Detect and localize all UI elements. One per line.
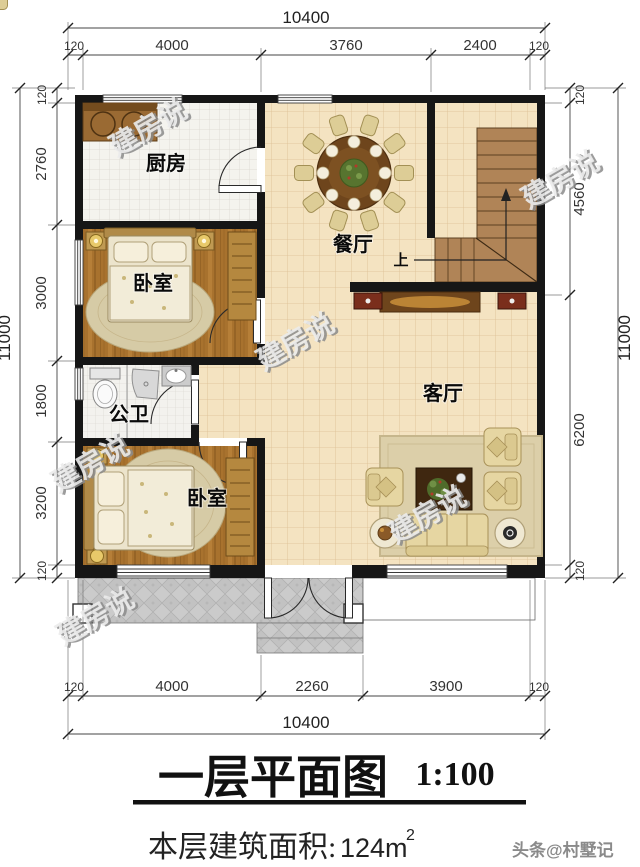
dim-bottom-0: 120 <box>64 680 84 694</box>
dim-left-4: 3200 <box>33 486 50 519</box>
drawing-title: 一层平面图 <box>158 752 388 803</box>
title-block: 一层平面图 1:100 本层建筑面积: 124m 2 头条@村墅记 <box>133 752 614 864</box>
faucet-icon <box>175 369 178 372</box>
pillow <box>152 242 186 262</box>
dim-left-5: 120 <box>35 561 49 581</box>
wardrobe <box>226 458 254 556</box>
dim-right-2: 6200 <box>571 413 588 446</box>
dim-top-1: 4000 <box>155 37 188 54</box>
wall-stair-left <box>427 95 435 238</box>
living-label: 客厅 <box>422 381 463 405</box>
bedroom1-window <box>75 240 83 305</box>
shower-tray <box>132 369 159 399</box>
armchair <box>484 428 521 466</box>
dining-chair <box>395 166 414 181</box>
pillow <box>98 510 124 544</box>
dim-bottom-total: 10400 <box>282 713 329 732</box>
credit-watermark: 头条@村墅记 <box>512 840 614 860</box>
wardrobe <box>228 232 256 320</box>
dim-top-4: 120 <box>529 39 549 53</box>
dim-top-total: 10400 <box>282 8 329 27</box>
toilet-tank <box>90 368 120 379</box>
dimensions-top: 10400 120 4000 3760 2400 120 <box>63 8 550 92</box>
wall-tv <box>350 282 545 292</box>
dim-right-total: 11000 <box>615 315 634 361</box>
dim-left-0: 120 <box>35 85 49 105</box>
dim-bottom-4: 120 <box>529 680 549 694</box>
dim-left-2: 3000 <box>33 276 50 309</box>
living-window <box>387 565 507 578</box>
wall-bedroom1-hall <box>83 357 265 365</box>
dining-chair <box>295 166 314 181</box>
stair-up-label: 上 <box>393 252 408 269</box>
dim-left-3: 1800 <box>33 384 50 417</box>
armchair <box>366 468 403 506</box>
bedroom2-label: 卧室 <box>187 486 227 510</box>
dimensions-left: 120 2760 3000 1800 3200 120 11000 <box>0 83 75 583</box>
dim-left-total: 11000 <box>0 315 14 361</box>
floorplan-drawing: 厨房 餐厅 卧室 公卫 卧室 客厅 上 10400 120 4000 3760 … <box>0 0 640 867</box>
dining-label: 餐厅 <box>333 232 373 256</box>
side-table <box>495 518 525 548</box>
dim-top-3: 2400 <box>463 37 496 54</box>
porch-area <box>73 578 535 653</box>
armchair <box>484 472 521 510</box>
bathroom-window <box>75 368 83 400</box>
bedroom1-label: 卧室 <box>133 271 173 295</box>
pillow <box>114 242 148 262</box>
terrace-outline <box>363 578 535 620</box>
dim-bottom-2: 2260 <box>295 678 328 695</box>
dining-window <box>278 95 332 103</box>
wall-bedroom2-right <box>257 438 265 565</box>
dim-right-0: 120 <box>573 85 587 105</box>
bedroom2-window <box>117 565 210 578</box>
tv-console-set <box>354 292 526 312</box>
dim-bottom-3: 3900 <box>429 678 462 695</box>
bathroom-label: 公卫 <box>109 403 149 426</box>
dim-bottom-1: 4000 <box>155 678 188 695</box>
lamp-icon <box>91 550 104 563</box>
floorplan-page: 厨房 餐厅 卧室 公卫 卧室 客厅 上 10400 120 4000 3760 … <box>0 0 640 867</box>
dim-top-0: 120 <box>64 39 84 53</box>
blanket <box>128 470 192 546</box>
area-label: 本层建筑面积: <box>148 831 336 864</box>
entry-door-opening <box>265 565 352 578</box>
centerpiece-plant <box>340 159 368 187</box>
kitchen-label: 厨房 <box>146 151 186 175</box>
drawing-scale: 1:100 <box>415 756 494 793</box>
area-superscript: 2 <box>406 827 415 844</box>
area-value: 124m <box>340 833 408 863</box>
dim-left-1: 2760 <box>33 147 50 180</box>
wall-exterior-left <box>75 95 83 578</box>
dim-right-3: 120 <box>573 561 587 581</box>
title-underline <box>133 800 526 805</box>
dim-top-2: 3760 <box>329 37 362 54</box>
